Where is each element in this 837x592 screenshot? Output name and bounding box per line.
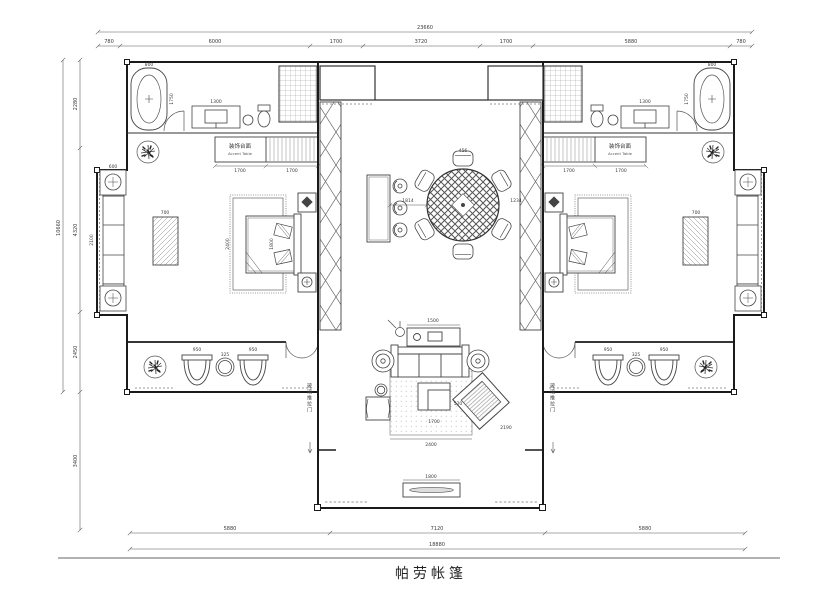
dim-vanity-right: 1300 [639,99,651,105]
dim-cabinet-a-left: 1700 [234,168,246,174]
dim-coffee-width: 520 [454,401,463,407]
dim-bottom-seg1: 7120 [431,526,444,532]
dim-top-total: 23660 [417,25,433,31]
dim-table-side: 1234 [510,198,522,204]
accent-table-label-cn-right: 装饰台面 [609,142,632,150]
console-table [407,328,460,346]
dim-cabinet-b-right: 1700 [563,168,575,174]
dining-table [427,169,499,241]
left-wing [95,60,321,395]
floor-plan-sheet: 23660 780 6000 1700 3720 1700 5880 780 1… [0,0,837,592]
dim-bottom-seg0: 5880 [224,526,237,532]
dim-console: 1500 [427,318,439,324]
floor-lamp [388,320,405,337]
dim-left-seg3: 3400 [73,455,79,468]
dim-top-seg0: 780 [104,39,114,45]
dim-left-total: 10660 [56,220,62,236]
dim-deck-table-right: 325 [632,352,641,358]
dim-top-seg2: 1700 [330,39,343,45]
dim-cabinet-a-right: 1700 [615,168,627,174]
dim-left-seg1: 4320 [73,224,79,237]
lamp-table-right [467,350,489,372]
dim-tub-length-left: 1750 [169,93,175,105]
dim-tub-width-right: 800 [708,62,717,68]
dim-side-table-right: 700 [692,210,701,216]
dim-top-seg1: 6000 [209,39,222,45]
sofa [391,345,469,377]
dim-coffee-length: 1700 [428,419,440,425]
dim-bottom-total: 18880 [429,542,445,548]
dim-bed-width-left: 1800 [269,238,275,250]
dim-deck-chair-a-left: 950 [193,347,202,353]
dim-deck-chair-b-left: 950 [249,347,258,353]
dim-rug-side: 2190 [500,425,512,431]
floor-plan-drawing: 23660 780 6000 1700 3720 1700 5880 780 1… [0,0,837,592]
living-area [366,320,509,435]
dim-rug: 2400 [425,442,437,448]
right-wing [541,60,767,395]
sliding-door-label-right: 玻璃推拉门 [549,382,555,413]
dim-cabinet-b-left: 1700 [286,168,298,174]
small-stool [375,384,387,396]
dim-top-seg4: 1700 [500,39,513,45]
bar-counter [367,175,390,242]
dim-tub-width-left: 800 [145,62,154,68]
dim-left-seg2: 2450 [73,346,79,359]
dim-left-seg0: 2280 [73,98,79,111]
entry-platform-left [320,66,375,100]
dim-planter: 1800 [425,474,437,480]
porch [325,483,538,502]
dim-deck-chair-a-right: 950 [660,347,669,353]
accent-table-label-en-left: Accent Table [228,151,253,156]
dim-deck-chair-b-right: 950 [604,347,613,353]
dim-bottom-seg2: 5880 [639,526,652,532]
accent-table-label-cn-left: 装饰台面 [229,142,252,150]
dim-vanity-left: 1300 [210,99,222,105]
lattice-screen-left [320,102,341,330]
coffee-table [418,383,450,410]
accent-table-label-en-right: Accent Table [608,151,633,156]
dim-balcony-sofa-left: 2100 [89,234,95,246]
dim-tub-length-right: 1750 [684,93,690,105]
dim-dining-chair: 456 [459,148,468,154]
lamp-table-left [372,350,394,372]
dim-top-seg6: 780 [736,39,746,45]
entry-platform-right [488,66,543,100]
sliding-door-label-left: 玻璃推拉门 [306,382,312,413]
dim-deck-table-left: 325 [221,352,230,358]
lattice-screen-right [520,102,541,330]
bench [366,397,390,420]
dim-top-seg3: 3720 [415,39,428,45]
dim-end-table-left: 600 [109,164,118,170]
dim-bed-length-left: 2400 [225,238,231,250]
dim-side-table-left: 700 [161,210,170,216]
dim-bar-gap: 1814 [402,198,414,204]
drawing-title: 帕劳帐篷 [395,566,467,582]
dim-top-seg5: 5880 [625,39,638,45]
